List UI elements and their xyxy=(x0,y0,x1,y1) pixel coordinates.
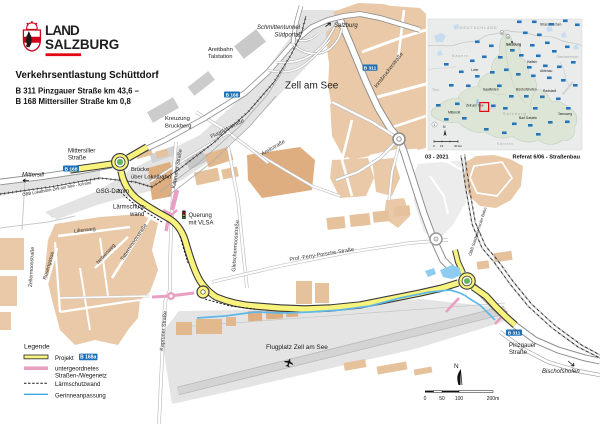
svg-text:0: 0 xyxy=(424,396,427,402)
svg-text:Lärmschutz-: Lärmschutz- xyxy=(113,205,146,211)
svg-text:15: 15 xyxy=(440,144,444,148)
svg-text:Abtenau: Abtenau xyxy=(540,69,552,73)
svg-text:Tamsweg: Tamsweg xyxy=(558,112,572,116)
svg-text:Salzburg: Salzburg xyxy=(334,23,358,29)
svg-text:Salzburg: Salzburg xyxy=(506,43,521,47)
svg-text:Bischofshofen: Bischofshofen xyxy=(542,369,580,375)
svg-text:1: 1 xyxy=(434,123,436,127)
svg-text:Brücke: Brücke xyxy=(131,167,149,173)
svg-text:B 311: B 311 xyxy=(508,330,521,336)
svg-text:B 311 Pinzgauer Straße km 43,6: B 311 Pinzgauer Straße km 43,6 – xyxy=(16,87,140,96)
svg-text:B 168a: B 168a xyxy=(80,355,96,361)
svg-text:Bad Gastein: Bad Gastein xyxy=(519,116,537,120)
svg-text:Verkehrsentlastung Schüttdorf: Verkehrsentlastung Schüttdorf xyxy=(16,70,160,81)
svg-text:Areitbahn: Areitbahn xyxy=(208,47,233,53)
svg-text:Legende: Legende xyxy=(24,344,50,351)
svg-text:Straße: Straße xyxy=(68,156,87,162)
svg-text:Bayern: Bayern xyxy=(452,54,469,58)
svg-text:Kreuzung: Kreuzung xyxy=(165,116,190,122)
svg-text:untergeordnetes: untergeordnetes xyxy=(55,367,99,373)
svg-text:Zell am See: Zell am See xyxy=(285,81,339,92)
svg-text:Lofer: Lofer xyxy=(471,68,479,72)
svg-text:DEUTSCHLAND: DEUTSCHLAND xyxy=(460,26,498,30)
svg-text:LAND: LAND xyxy=(45,23,80,38)
svg-text:N: N xyxy=(454,363,459,370)
svg-text:Projekt: Projekt xyxy=(55,356,74,362)
svg-text:B 168: B 168 xyxy=(65,166,78,172)
svg-text:Gerinneanpassung: Gerinneanpassung xyxy=(55,393,106,399)
svg-text:Oberösterreich: Oberösterreich xyxy=(556,55,579,59)
svg-text:Bruckberg: Bruckberg xyxy=(165,124,191,130)
svg-text:Mittersiller: Mittersiller xyxy=(68,149,95,155)
svg-text:Bischofshofen: Bischofshofen xyxy=(516,88,537,92)
svg-text:Straßen-/Wegenetz: Straßen-/Wegenetz xyxy=(55,374,107,380)
svg-text:Querung: Querung xyxy=(189,213,212,219)
svg-text:A: A xyxy=(507,35,509,39)
svg-text:Zell am See: Zell am See xyxy=(466,104,484,108)
svg-text:Talstation: Talstation xyxy=(208,54,233,60)
svg-text:Kärnten: Kärnten xyxy=(497,142,514,146)
svg-text:Tirol: Tirol xyxy=(432,88,439,92)
svg-text:Pinzgauer: Pinzgauer xyxy=(509,343,536,349)
svg-text:Südportal: Südportal xyxy=(274,33,300,39)
svg-text:03 - 2021: 03 - 2021 xyxy=(425,155,449,161)
svg-text:Straße: Straße xyxy=(509,350,528,356)
svg-text:Mittersill: Mittersill xyxy=(448,111,460,115)
svg-text:B 168: B 168 xyxy=(226,92,239,98)
svg-text:Radstadt: Radstadt xyxy=(543,89,556,93)
svg-text:Referat 6/06 - Straßenbau: Referat 6/06 - Straßenbau xyxy=(513,155,581,161)
svg-text:Flugplatz Zell am See: Flugplatz Zell am See xyxy=(266,344,328,351)
svg-text:30 km: 30 km xyxy=(454,144,463,148)
svg-text:Schmittentunnel: Schmittentunnel xyxy=(257,25,301,31)
svg-text:wand: wand xyxy=(129,212,144,218)
svg-text:B 168 Mittersiller Straße km 0: B 168 Mittersiller Straße km 0,8 xyxy=(16,97,132,106)
svg-text:mit VLSA: mit VLSA xyxy=(189,221,214,227)
svg-text:50: 50 xyxy=(439,396,445,402)
svg-text:GSG-Damm: GSG-Damm xyxy=(96,189,129,195)
svg-text:SALZBURG: SALZBURG xyxy=(45,37,119,52)
svg-text:über Lokalbahn: über Lokalbahn xyxy=(131,175,171,181)
svg-text:Lärmschutzwand: Lärmschutzwand xyxy=(55,382,100,388)
svg-text:Hallein: Hallein xyxy=(527,60,537,64)
svg-text:B 311: B 311 xyxy=(364,65,377,71)
svg-text:Mittersill: Mittersill xyxy=(22,173,45,179)
svg-text:100: 100 xyxy=(455,396,464,402)
svg-text:200m: 200m xyxy=(487,396,500,402)
svg-text:Saalfelden: Saalfelden xyxy=(483,88,499,92)
